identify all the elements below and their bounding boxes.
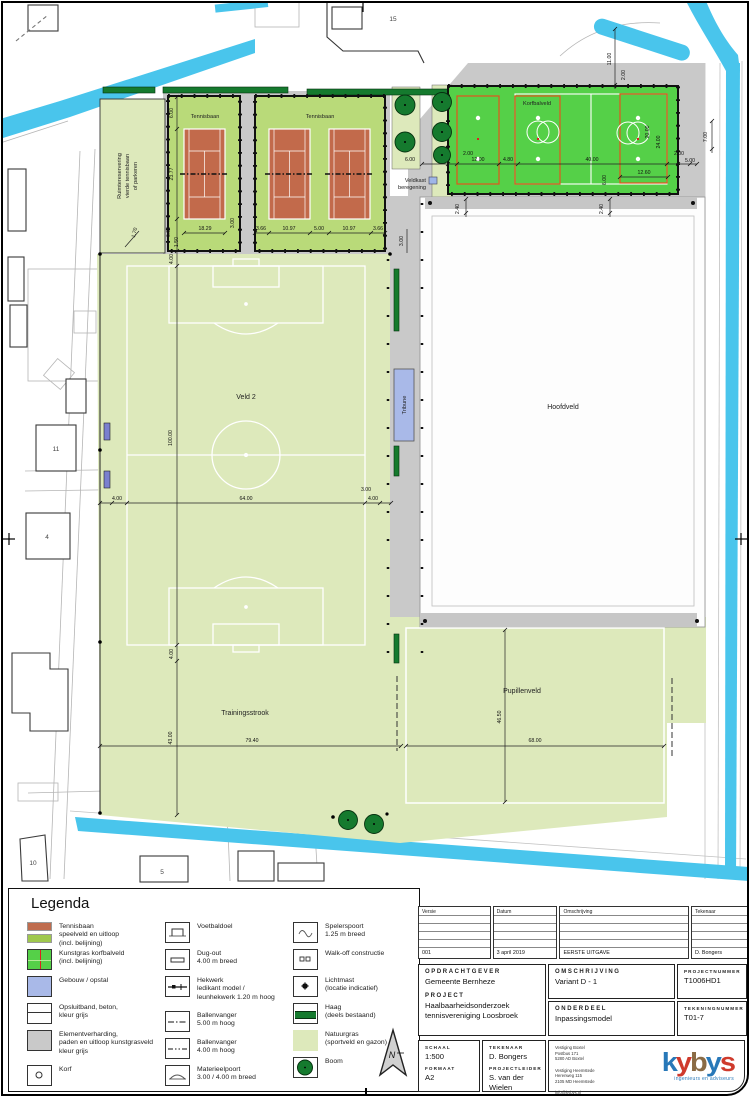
legend-item-tennisbaan: Tennisbaan speelveld en uitloop (incl. b…	[27, 922, 165, 944]
ditch-north	[215, 3, 269, 13]
svg-text:40.00: 40.00	[586, 157, 599, 163]
korf-symbol	[27, 1065, 52, 1086]
logo-box: Vestiging Boxtel Postbus 171 5280 AD Box…	[548, 1040, 745, 1092]
legend-column-2: Voetbaldoel Dug-out 4.00 m breed Hekwerk…	[165, 922, 293, 1089]
svg-text:vierde tennisbaan: vierde tennisbaan	[125, 154, 131, 198]
tekeningnummer-box: TEKENINGNUMMER T01-7	[677, 1001, 747, 1036]
svg-text:6.00: 6.00	[166, 227, 172, 237]
main-field: Hoofdveld	[420, 197, 705, 627]
svg-text:3.66: 3.66	[256, 226, 266, 232]
haag-swatch	[293, 1003, 318, 1024]
svg-text:4.80: 4.80	[503, 157, 513, 163]
svg-text:2.00: 2.00	[621, 70, 627, 80]
svg-text:4.00: 4.00	[112, 496, 122, 502]
legend-panel: Legenda Tennisbaan speelveld en uitloop …	[8, 888, 420, 1092]
svg-text:20.00: 20.00	[645, 125, 651, 138]
svg-text:5: 5	[160, 869, 164, 876]
tekenaar-projectleider-box: TEKENAAR D. Bongers PROJECTLEIDER S. van…	[482, 1040, 546, 1092]
svg-text:10.97: 10.97	[283, 226, 296, 232]
svg-text:of parkeren: of parkeren	[133, 162, 139, 190]
hekwerk-symbol	[165, 976, 190, 997]
project-label: PROJECT	[425, 993, 539, 999]
svg-text:4.00: 4.00	[169, 254, 175, 264]
svg-text:2.40: 2.40	[599, 204, 605, 214]
onderdeel-box: ONDERDEEL Inpassingsmodel	[548, 1001, 675, 1036]
legend-item-dugout: Dug-out 4.00 m breed	[165, 949, 293, 971]
projectnummer-box: PROJECTNUMMER T1006HD1	[677, 964, 747, 999]
title-block: Versie 001 Datum 3 april 2019 Omschrijvi…	[418, 906, 749, 1092]
tennis-label-2: Tennisbaan	[306, 114, 335, 120]
legend-column-1: Tennisbaan speelveld en uitloop (incl. b…	[27, 922, 165, 1089]
svg-text:11.00: 11.00	[607, 53, 613, 66]
svg-text:5.00: 5.00	[314, 226, 324, 232]
natuurgras-swatch	[293, 1030, 318, 1051]
svg-text:Tribune: Tribune	[402, 396, 408, 415]
korfball-label: Korfbalveld	[523, 101, 551, 107]
legend-item-elementverharding: Elementverharding, paden en uitloop kuns…	[27, 1030, 165, 1060]
svg-text:N: N	[389, 1050, 396, 1060]
lichtmast-symbol	[293, 976, 318, 997]
legend-item-korfbalveld: Kunstgras korfbalveld (incl. belijning)	[27, 949, 165, 971]
svg-text:100.00: 100.00	[168, 430, 174, 446]
svg-text:23.77: 23.77	[169, 167, 175, 180]
svg-text:18.29: 18.29	[199, 226, 212, 232]
canal-east	[725, 63, 740, 879]
company-address: Vestiging Boxtel Postbus 171 5280 AD Box…	[555, 1045, 595, 1087]
north-arrow: N	[373, 1027, 413, 1083]
svg-text:68.00: 68.00	[529, 738, 542, 744]
project-value: Haalbaarheidsonderzoek tennisvereniging …	[425, 1001, 539, 1020]
client-project-box: OPDRACHTGEVER Gemeente Bernheze PROJECT …	[418, 964, 546, 1036]
gebouw-swatch	[27, 976, 52, 997]
tennisbaan-swatch	[27, 922, 52, 943]
legend-item-korf: Korf	[27, 1065, 165, 1087]
svg-text:12.60: 12.60	[638, 170, 651, 176]
kybys-logo: kybys	[662, 1052, 734, 1075]
site-plan: Hoofdveld Tennisbaan	[3, 3, 747, 887]
legend-title: Legenda	[31, 895, 89, 912]
revision-col-versie: Versie 001	[418, 906, 491, 959]
ballenvanger4-symbol	[165, 1038, 190, 1059]
legend-item-opsluitband: Opsluitband, beton, kleur grijs	[27, 1003, 165, 1025]
svg-text:Ruimtereservering: Ruimtereservering	[117, 153, 123, 199]
svg-text:24.00: 24.00	[656, 135, 662, 148]
svg-text:3.00: 3.00	[230, 218, 236, 228]
svg-text:12.00: 12.00	[472, 157, 485, 163]
svg-text:5.00: 5.00	[685, 158, 695, 164]
svg-text:Veldkast: Veldkast	[405, 178, 427, 184]
revision-table: Versie 001 Datum 3 april 2019 Omschrijvi…	[418, 906, 749, 959]
svg-text:6.00: 6.00	[602, 175, 608, 185]
elementverharding-swatch	[27, 1030, 52, 1051]
opsluitband-swatch	[27, 1003, 52, 1024]
training-strip-label: Trainingsstrook	[221, 710, 269, 717]
tennis-label-1: Tennisbaan	[191, 114, 220, 120]
legend-item-lichtmast: Lichtmast (locatie indicatief)	[293, 976, 415, 998]
legend-item-hekwerk: Hekwerk ledikant model / leunhekwerk 1.2…	[165, 976, 293, 1006]
drawing-sheet: Hoofdveld Tennisbaan	[1, 1, 749, 1096]
svg-text:10: 10	[29, 860, 37, 867]
ballenvanger5-symbol	[165, 1011, 190, 1032]
svg-text:79.40: 79.40	[246, 738, 259, 744]
pupil-field-label: Pupillenveld	[503, 688, 541, 695]
legend-item-haag: Haag (deels bestaand)	[293, 1003, 415, 1025]
legend-item-materieelpoort: Materieelpoort 3.00 / 4.00 m breed	[165, 1065, 293, 1087]
svg-text:4.00: 4.00	[169, 649, 175, 659]
legend-item-ballenvanger4: Ballenvanger 4.00 m hoog	[165, 1038, 293, 1060]
dugout-symbol	[165, 949, 190, 970]
tribune: Tribune	[394, 369, 414, 441]
walkoff-symbol	[293, 949, 318, 970]
revision-col-datum: Datum 3 april 2019	[493, 906, 558, 959]
dugout	[104, 471, 110, 488]
spelerspoort-symbol	[293, 922, 318, 943]
opdrachtgever-value: Gemeente Bernheze	[425, 977, 539, 986]
boom-symbol	[293, 1057, 318, 1078]
svg-text:7.00: 7.00	[703, 132, 709, 142]
svg-text:3.00: 3.00	[361, 487, 371, 493]
legend-item-spelerspoort: Spelerspoort 1.25 m breed	[293, 922, 415, 944]
voetbaldoel-symbol	[165, 922, 190, 943]
materieelpoort-symbol	[165, 1065, 190, 1086]
building-5	[140, 856, 188, 882]
svg-text:43.00: 43.00	[168, 731, 174, 744]
svg-text:3.00: 3.00	[399, 236, 405, 246]
legend-item-ballenvanger5: Ballenvanger 5.00 m hoog	[165, 1011, 293, 1033]
veld2-label: Veld 2	[236, 394, 256, 401]
svg-text:6.00: 6.00	[169, 108, 175, 118]
veldkast	[429, 177, 437, 184]
frame-tick-bottom	[365, 1088, 367, 1096]
svg-text:2.00: 2.00	[674, 151, 684, 157]
korfbalveld-swatch	[27, 949, 52, 970]
svg-text:11: 11	[53, 446, 60, 453]
svg-text:6.00: 6.00	[405, 157, 415, 163]
dugout	[104, 423, 110, 440]
revision-col-tekenaar: Tekenaar D. Bongers	[691, 906, 749, 959]
svg-text:46.50: 46.50	[497, 710, 503, 723]
main-field-label: Hoofdveld	[547, 404, 579, 411]
revision-col-omschrijving: Omschrijving EERSTE UITGAVE	[559, 906, 689, 959]
svg-text:2.40: 2.40	[455, 204, 461, 214]
svg-text:64.00: 64.00	[240, 496, 253, 502]
legend-item-voetbaldoel: Voetbaldoel	[165, 922, 293, 944]
svg-text:beregening: beregening	[398, 185, 426, 191]
svg-text:10.97: 10.97	[343, 226, 356, 232]
svg-text:15: 15	[389, 16, 397, 23]
schaal-formaat-box: SCHAAL 1:500 FORMAAT A2	[418, 1040, 480, 1092]
legend-item-walkoff: Walk-off constructie	[293, 949, 415, 971]
svg-text:3.66: 3.66	[373, 226, 383, 232]
svg-text:4: 4	[45, 534, 49, 541]
svg-text:1.50: 1.50	[174, 237, 180, 247]
svg-text:4.00: 4.00	[368, 496, 378, 502]
canal-northeast	[686, 3, 740, 71]
omschrijving-box: OMSCHRIJVING Variant D - 1	[548, 964, 675, 999]
building-10	[20, 835, 48, 881]
opdrachtgever-label: OPDRACHTGEVER	[425, 969, 539, 975]
legend-item-gebouw: Gebouw / opstal	[27, 976, 165, 998]
